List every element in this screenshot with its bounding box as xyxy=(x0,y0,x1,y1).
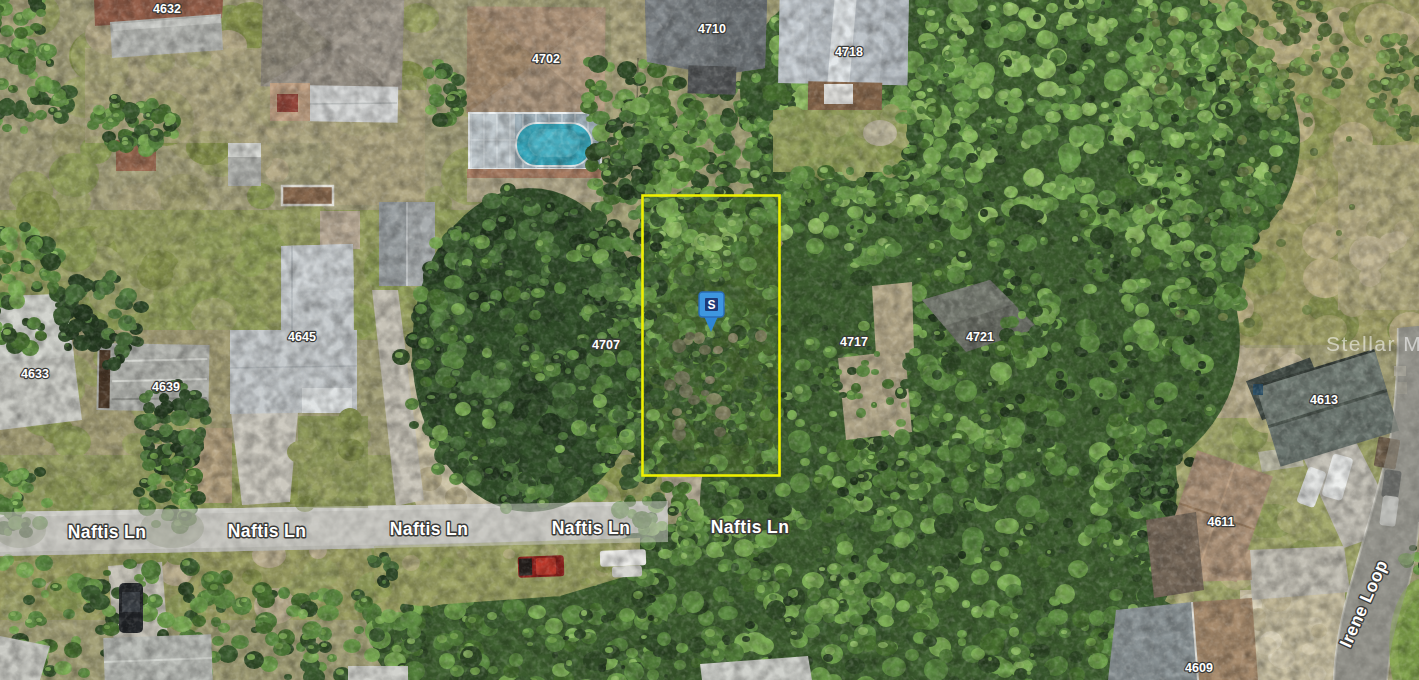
svg-text:4632: 4632 xyxy=(153,2,181,16)
svg-text:Naftis Ln: Naftis Ln xyxy=(228,521,306,541)
svg-text:Naftis Ln: Naftis Ln xyxy=(390,519,468,539)
svg-text:Naftis Ln: Naftis Ln xyxy=(552,518,630,538)
svg-text:4645: 4645 xyxy=(288,330,316,344)
svg-text:Naftis Ln: Naftis Ln xyxy=(68,522,146,542)
svg-text:Naftis Ln: Naftis Ln xyxy=(711,517,789,537)
svg-text:4633: 4633 xyxy=(21,367,49,381)
svg-text:4611: 4611 xyxy=(1207,515,1234,529)
svg-text:4639: 4639 xyxy=(152,380,180,394)
svg-text:4710: 4710 xyxy=(698,22,726,36)
svg-text:Stellar MLS: Stellar MLS xyxy=(1326,332,1419,355)
svg-text:4717: 4717 xyxy=(840,335,868,349)
svg-text:4609: 4609 xyxy=(1185,661,1213,675)
svg-text:4707: 4707 xyxy=(592,338,620,352)
svg-text:4721: 4721 xyxy=(966,330,994,344)
svg-text:4702: 4702 xyxy=(532,52,560,66)
svg-text:4718: 4718 xyxy=(835,45,863,59)
svg-text:S: S xyxy=(707,298,715,312)
svg-text:4613: 4613 xyxy=(1310,393,1338,407)
